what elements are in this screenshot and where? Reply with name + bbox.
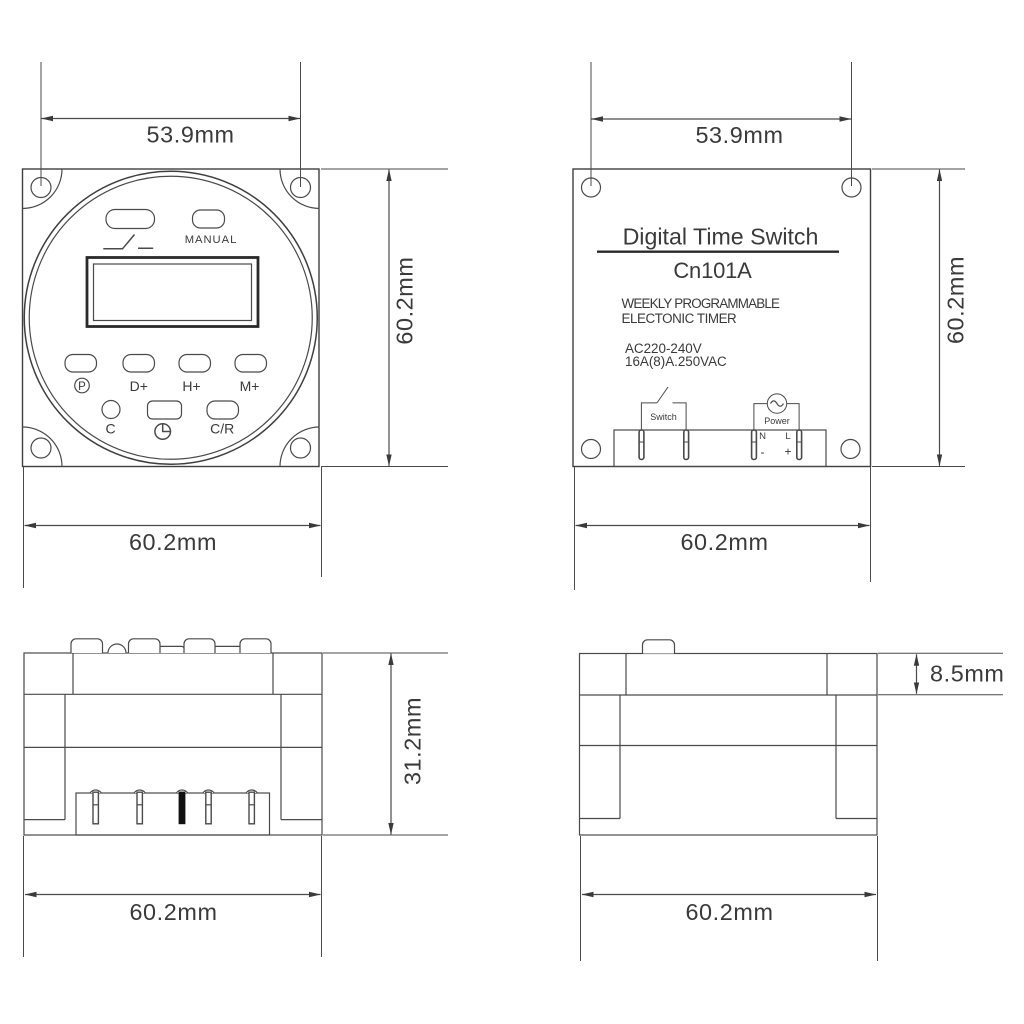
svg-text:H+: H+ <box>182 378 200 394</box>
svg-text:WEEKLY PROGRAMMABLE: WEEKLY PROGRAMMABLE <box>622 296 781 311</box>
svg-text:16A(8)A.250VAC: 16A(8)A.250VAC <box>625 354 727 369</box>
svg-text:60.2mm: 60.2mm <box>129 899 217 925</box>
svg-text:Power: Power <box>764 416 790 426</box>
svg-text:M+: M+ <box>240 378 260 394</box>
svg-text:MANUAL: MANUAL <box>185 234 238 246</box>
svg-text:Switch: Switch <box>650 412 677 422</box>
svg-text:ELECTONIC TIMER: ELECTONIC TIMER <box>622 311 738 326</box>
svg-text:8.5mm: 8.5mm <box>930 660 1005 686</box>
svg-text:P: P <box>78 381 86 393</box>
svg-text:C/R: C/R <box>210 421 234 437</box>
svg-text:N: N <box>759 431 766 442</box>
svg-text:53.9mm: 53.9mm <box>695 122 783 148</box>
svg-text:60.2mm: 60.2mm <box>129 529 217 555</box>
svg-text:60.2mm: 60.2mm <box>391 257 417 345</box>
svg-text:Cn101A: Cn101A <box>673 258 752 283</box>
svg-text:-: - <box>761 445 765 459</box>
svg-text:+: + <box>784 445 791 459</box>
svg-text:D+: D+ <box>130 378 148 394</box>
svg-text:60.2mm: 60.2mm <box>685 899 773 925</box>
svg-text:L: L <box>785 431 790 442</box>
svg-text:31.2mm: 31.2mm <box>400 697 426 785</box>
svg-text:53.9mm: 53.9mm <box>147 122 235 148</box>
svg-text:60.2mm: 60.2mm <box>943 256 969 344</box>
svg-text:60.2mm: 60.2mm <box>680 529 768 555</box>
svg-text:C: C <box>105 421 115 437</box>
svg-text:Digital Time Switch: Digital Time Switch <box>623 224 819 250</box>
